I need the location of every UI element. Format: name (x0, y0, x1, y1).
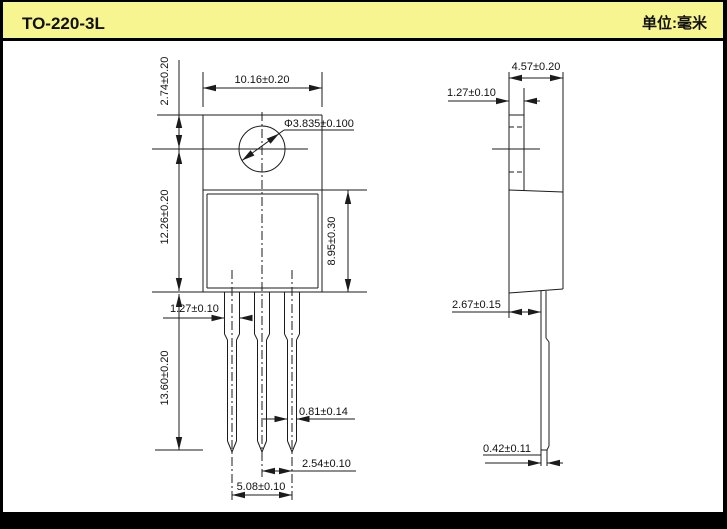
dim-label-lead-upper-width: 1.27±0.10 (170, 303, 219, 315)
dim-label-hole-diameter: Φ3.835±0.100 (284, 118, 354, 130)
dim-label-lead-length: 13.60±0.20 (159, 351, 171, 406)
dim-overall-depth: 4.57±0.20 (509, 61, 563, 81)
unit-label: 单位:毫米 (642, 14, 708, 32)
dim-label-body-height: 8.95±0.30 (326, 217, 338, 266)
dim-label-overall-depth: 4.57±0.20 (512, 61, 561, 73)
package-title: TO-220-3L (22, 14, 105, 33)
package-outline-drawing: TO-220-3L 单位:毫米 (0, 0, 727, 529)
header-bar (3, 2, 723, 38)
dim-label-top-to-hole: 2.74±0.20 (159, 57, 171, 106)
dim-label-lead-lower-width: 0.81±0.14 (299, 406, 348, 418)
drawing-area (3, 41, 723, 512)
drawing-canvas: TO-220-3L 单位:毫米 (0, 0, 727, 529)
dim-label-body-depth: 2.67±0.15 (452, 299, 501, 311)
dim-label-outer-lead-span: 5.08±0.10 (237, 481, 286, 493)
dim-label-hole-to-base: 12.26±0.20 (159, 190, 171, 245)
dim-label-lead-thickness: 0.42±0.11 (483, 443, 531, 455)
dim-label-lead-pitch: 2.54±0.10 (302, 458, 351, 470)
dim-label-overall-width: 10.16±0.20 (235, 74, 290, 86)
dim-label-tab-thickness: 1.27±0.10 (447, 87, 496, 99)
